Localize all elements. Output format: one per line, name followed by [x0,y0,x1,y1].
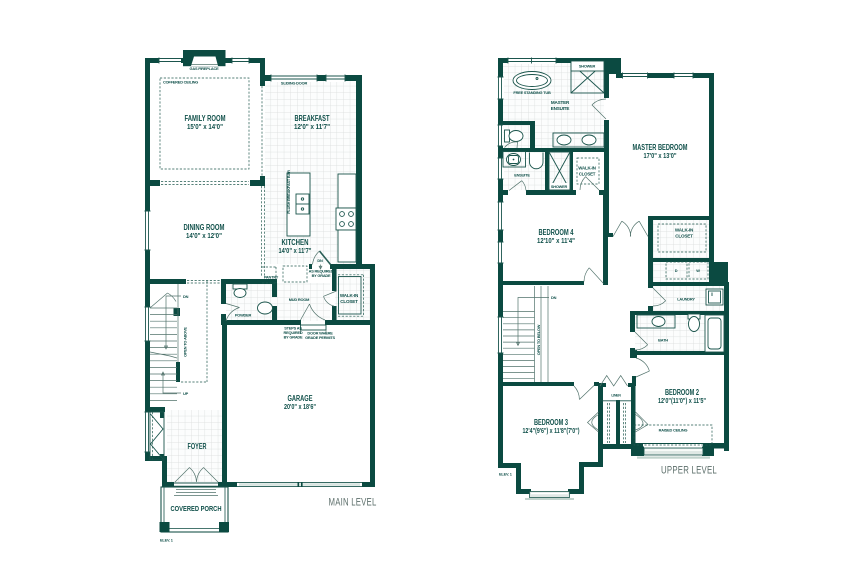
svg-text:PANTRY: PANTRY [264,275,279,280]
svg-text:FLUSH BREAKFAST BAR: FLUSH BREAKFAST BAR [286,170,291,214]
svg-text:CLOSET: CLOSET [675,234,693,239]
svg-text:ELEV. 1: ELEV. 1 [160,538,174,543]
svg-text:FREE STANDING TUB: FREE STANDING TUB [513,90,551,95]
svg-text:DN: DN [551,295,557,300]
svg-text:20'0" x 18'6": 20'0" x 18'6" [284,402,316,411]
svg-text:POWDER: POWDER [235,313,252,318]
svg-text:OPEN TO BELOW: OPEN TO BELOW [536,324,541,355]
svg-text:UPPER LEVEL: UPPER LEVEL [661,465,717,477]
svg-text:14'0" x 12'0": 14'0" x 12'0" [186,231,222,240]
svg-text:14'0" x 11'7": 14'0" x 11'7" [279,246,312,255]
svg-text:17'0" x 13'0": 17'0" x 13'0" [644,151,677,160]
svg-text:CLOSET: CLOSET [340,299,358,304]
svg-text:COFFERED CEILING: COFFERED CEILING [163,80,198,85]
svg-text:SHOWER: SHOWER [551,184,568,189]
svg-text:12'0" x 11'7": 12'0" x 11'7" [294,122,330,131]
svg-text:GAS FIREPLACE: GAS FIREPLACE [190,66,220,71]
svg-text:UP: UP [183,391,189,396]
svg-text:LAUNDRY: LAUNDRY [677,297,695,302]
svg-text:ENSUITE: ENSUITE [514,173,530,178]
svg-text:OPEN TO ABOVE: OPEN TO ABOVE [183,327,188,357]
svg-text:MAIN LEVEL: MAIN LEVEL [329,497,377,509]
svg-text:WALK-IN: WALK-IN [578,166,595,171]
svg-text:FOYER: FOYER [188,442,207,451]
svg-text:MUD ROOM: MUD ROOM [289,297,309,302]
svg-text:BY GRADE: BY GRADE [284,335,303,340]
svg-text:WALK-IN: WALK-IN [340,293,359,298]
svg-text:W: W [696,268,700,273]
svg-text:MASTER: MASTER [551,100,570,105]
svg-text:DN: DN [183,294,189,299]
svg-text:SHOWER: SHOWER [579,64,596,69]
svg-text:WALK-IN: WALK-IN [675,228,694,233]
svg-text:12'4"(9'6") x 11'8"(7'0"): 12'4"(9'6") x 11'8"(7'0") [523,426,580,435]
svg-text:RAISED CEILING: RAISED CEILING [659,428,688,433]
svg-text:ENSUITE: ENSUITE [551,106,570,111]
svg-text:LINEN: LINEN [611,394,621,398]
svg-text:BATH: BATH [658,338,668,343]
svg-text:COVERED PORCH: COVERED PORCH [171,506,222,513]
svg-text:SLIDING DOOR: SLIDING DOOR [281,81,308,86]
svg-text:ELEV. 1: ELEV. 1 [499,472,513,477]
svg-text:CLOSET: CLOSET [579,172,596,177]
svg-text:DN: DN [317,258,323,263]
svg-text:12'10" x 11'4": 12'10" x 11'4" [537,236,575,245]
svg-text:BY GRADE: BY GRADE [312,273,331,278]
svg-text:12'0"(11'0") x 11'5": 12'0"(11'0") x 11'5" [658,396,706,405]
svg-text:D: D [675,268,678,273]
svg-text:15'0" x 14'0": 15'0" x 14'0" [187,122,223,131]
svg-text:GRADE PERMITS: GRADE PERMITS [305,335,335,340]
